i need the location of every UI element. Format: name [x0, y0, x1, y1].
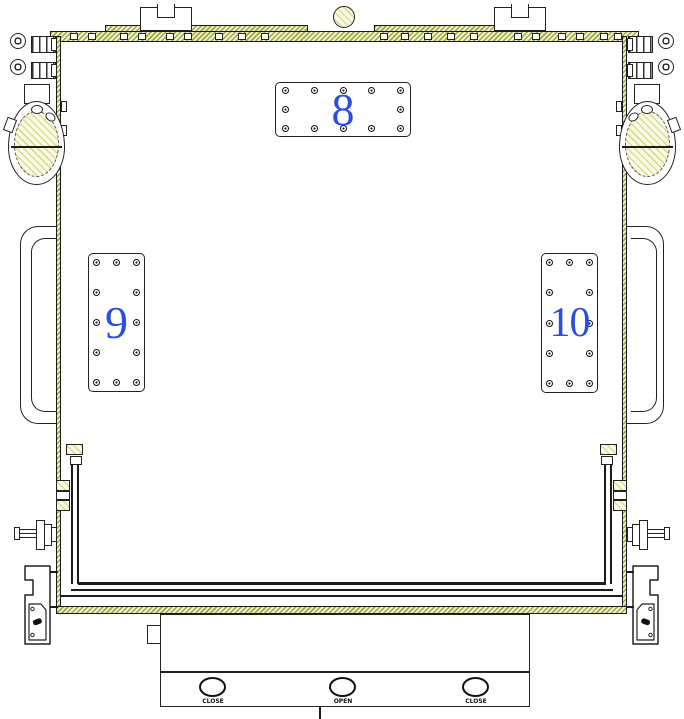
panel-number-10: 10 — [542, 254, 597, 392]
rail-tab — [238, 33, 246, 40]
top-rail-bolt-tabs — [0, 33, 684, 40]
latch-pivot-left — [31, 105, 43, 114]
wall-nub-left-a — [61, 101, 67, 112]
side-handle-left-inner — [31, 238, 57, 412]
screw-shaft-left — [19, 529, 37, 538]
wall-tab-left-c — [56, 500, 70, 511]
bracket-link-left-a — [50, 571, 58, 573]
latch-pivot-right — [641, 105, 653, 114]
bracket-link-right-a — [627, 571, 634, 573]
wall-tab-left-b — [56, 491, 70, 500]
bottom-center-line — [319, 707, 321, 719]
channel-step-left-hatch — [66, 444, 83, 455]
chamber-wall-bottom — [56, 606, 627, 614]
pneumatic-fitting-icon — [10, 33, 26, 49]
fitting-wall-stub — [51, 64, 57, 77]
rail-tab — [380, 33, 388, 40]
rail-tab — [401, 33, 409, 40]
access-panel-8: 8 — [275, 82, 411, 137]
rail-tab — [424, 33, 432, 40]
latch-chord-left — [11, 146, 62, 148]
fitting-wall-stub — [627, 38, 633, 51]
channel-bottom-line-2 — [61, 595, 623, 597]
rail-tab — [70, 33, 78, 40]
screw-stub-right — [627, 527, 633, 542]
channel-right-line-b — [610, 464, 612, 584]
access-panel-10: 10 — [541, 253, 598, 393]
wall-nub-right-a — [616, 101, 622, 112]
rail-tab — [138, 33, 146, 40]
pneumatic-fitting-icon — [658, 59, 674, 75]
rail-tab — [558, 33, 566, 40]
screw-stub-left — [51, 527, 57, 542]
bracket-link-left-b — [50, 606, 58, 608]
hinge-bracket-left — [18, 562, 54, 648]
screw-plate-right — [639, 520, 648, 550]
rail-tab — [215, 33, 223, 40]
valve-button-open — [329, 677, 356, 697]
pneumatic-fitting-icon — [658, 33, 674, 49]
screw-nut-right — [632, 524, 640, 546]
channel-left-line-b — [77, 464, 79, 584]
rail-tab — [261, 33, 269, 40]
rail-tab — [470, 33, 478, 40]
lifting-bracket-right-notch — [511, 4, 529, 18]
valve-button-close-left-label: CLOSE — [191, 698, 235, 705]
valve-button-close-right — [462, 677, 489, 697]
access-panel-9: 9 — [88, 253, 145, 392]
wall-tab-right-a — [613, 480, 627, 491]
bottom-assembly-tab — [147, 625, 161, 644]
rail-tab — [514, 33, 522, 40]
bottom-assembly-box — [160, 614, 530, 672]
rail-tab — [600, 33, 608, 40]
rail-tab — [576, 33, 584, 40]
rail-tab — [532, 33, 540, 40]
panel-number-8: 8 — [276, 83, 410, 136]
rail-tab — [447, 33, 455, 40]
screw-shaft-right — [647, 529, 665, 538]
valve-button-close-right-label: CLOSE — [454, 698, 498, 705]
valve-button-close-left — [199, 677, 226, 697]
rail-tab — [166, 33, 174, 40]
lifting-bracket-left-notch — [157, 4, 175, 18]
panel-number-9: 9 — [89, 254, 144, 391]
fitting-wall-stub — [51, 38, 57, 51]
channel-bottom-bar — [78, 582, 606, 585]
latch-chord-right — [622, 146, 673, 148]
channel-step-right-hatch — [600, 444, 617, 455]
hinge-bracket-right — [629, 562, 665, 648]
side-handle-right-inner — [631, 238, 657, 412]
wall-tab-right-b — [613, 491, 627, 500]
rail-tab — [120, 33, 128, 40]
wall-tab-left-a — [56, 480, 70, 491]
technical-drawing: 8 9 10 — [0, 0, 684, 719]
wall-tab-right-c — [613, 500, 627, 511]
channel-bottom-line-1 — [71, 589, 613, 591]
top-center-port-circle — [333, 6, 355, 28]
bracket-link-right-b — [627, 606, 634, 608]
channel-left-line-a — [71, 464, 73, 584]
rail-tab — [184, 33, 192, 40]
channel-right-line-a — [604, 464, 606, 584]
valve-button-open-label: OPEN — [321, 698, 365, 705]
rail-tab — [614, 33, 622, 40]
pneumatic-fitting-icon — [10, 59, 26, 75]
fitting-wall-stub — [627, 64, 633, 77]
rail-tab — [88, 33, 96, 40]
